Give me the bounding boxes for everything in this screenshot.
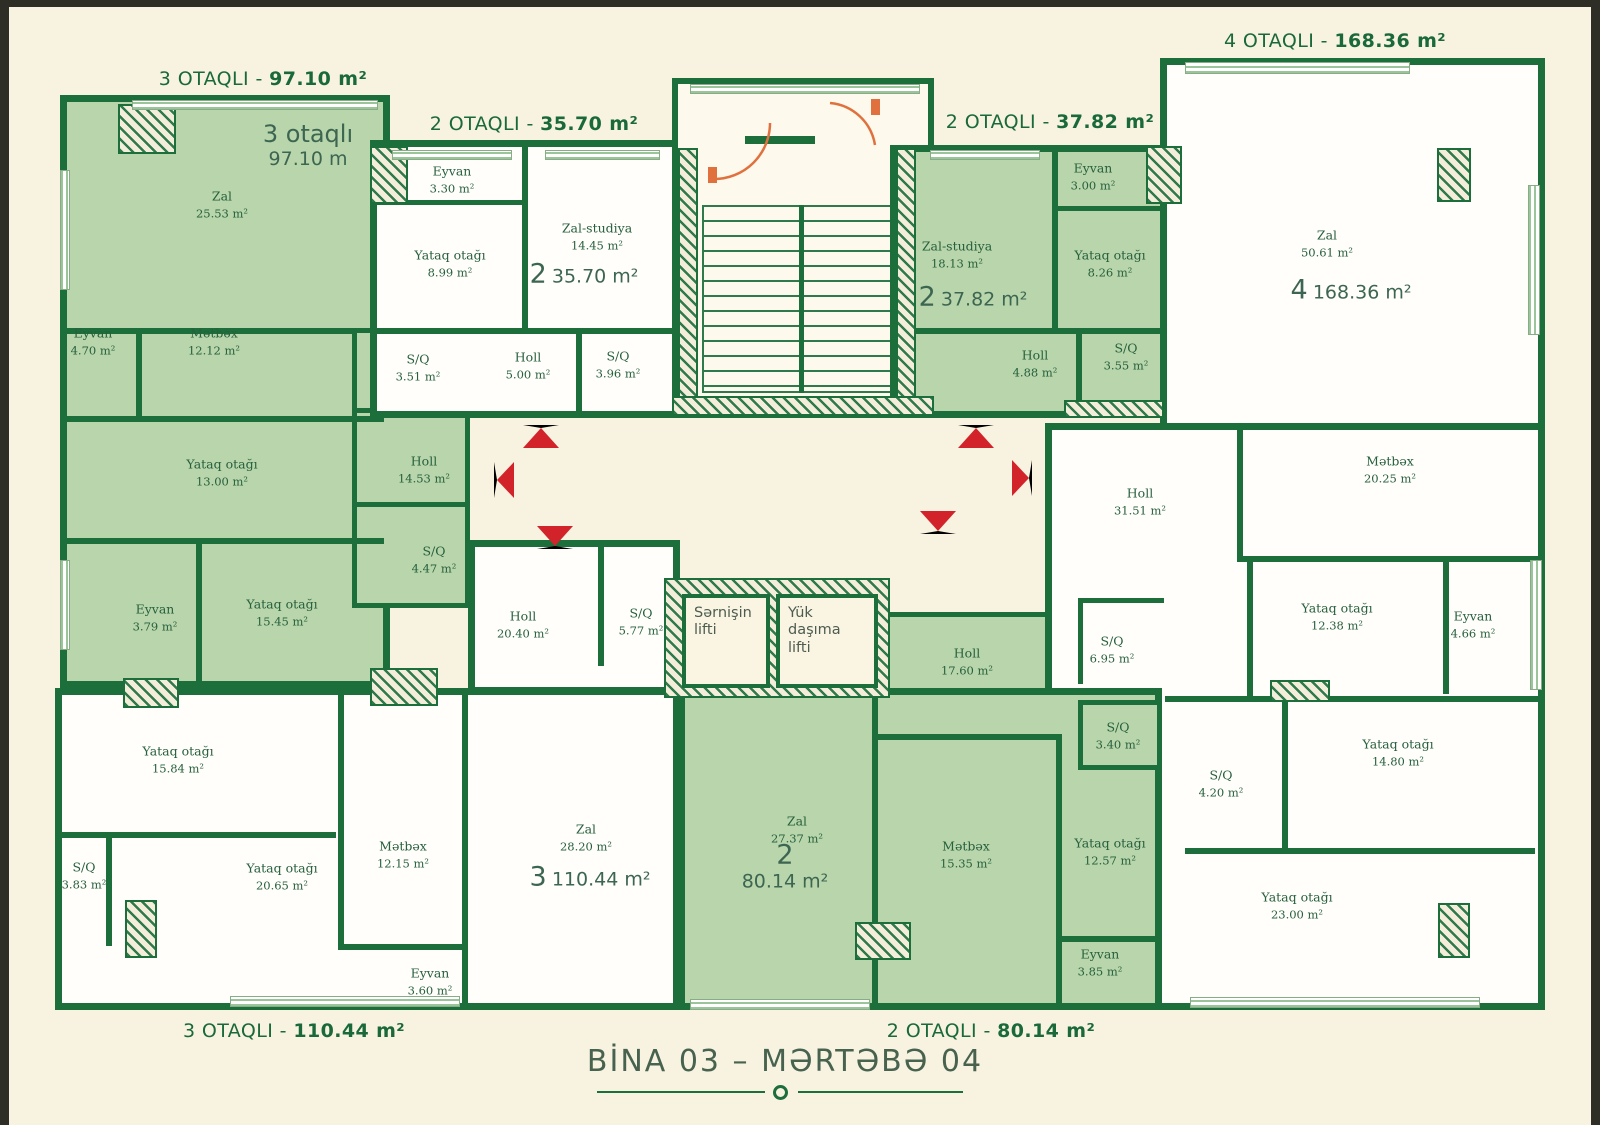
unit-area: 37.82 m² [941, 289, 1028, 311]
wall [1056, 740, 1062, 1004]
window [132, 100, 378, 110]
header-area: 97.10 m² [269, 68, 367, 90]
column-hatch [1437, 148, 1471, 202]
column-hatch [123, 678, 179, 708]
room-label: S/Q3.96 m² [596, 348, 641, 383]
column-hatch [118, 104, 176, 154]
apartment-97-inner-label: 3 otaqlı 97.10 m [263, 120, 353, 170]
window [60, 560, 70, 650]
header-area: 110.44 m² [293, 1020, 405, 1042]
header-label: 4 OTAQLI - [1224, 30, 1328, 52]
room-label: S/Q5.77 m² [619, 605, 664, 640]
wall [66, 416, 384, 422]
room-label: Eyvan3.79 m² [133, 601, 178, 636]
window [545, 150, 660, 160]
header-label: 2 OTAQLI - [887, 1020, 991, 1042]
room-label: Holl31.51 m² [1114, 485, 1166, 520]
column-hatch [370, 668, 438, 706]
room-label: Eyvan4.66 m² [1451, 608, 1496, 643]
window [1185, 62, 1410, 74]
stair-stringer [799, 205, 804, 393]
wall [1052, 151, 1058, 333]
room-label: Zal25.53 m² [196, 188, 248, 223]
entrance-arrow-right [1012, 460, 1032, 496]
wall [1185, 848, 1535, 854]
room-label: Zal28.20 m² [560, 821, 612, 856]
apartment-37-header: 2 OTAQLI - 37.82 m² [946, 111, 1154, 133]
room-label: Mətbəx15.35 m² [940, 838, 992, 873]
photo-edge [0, 0, 1600, 7]
room-label: Zal-studiya14.45 m² [562, 220, 632, 255]
wall [340, 944, 468, 950]
title-rule [597, 1091, 765, 1093]
entrance-arrow-up [958, 425, 994, 448]
apartment-35-header: 2 OTAQLI - 35.70 m² [430, 113, 638, 135]
wall [896, 328, 1174, 334]
unit-count: 2 [530, 259, 547, 290]
wall [1237, 430, 1243, 560]
apartment-110-header: 3 OTAQLI - 110.44 m² [183, 1020, 405, 1042]
header-label: 3 OTAQLI - [183, 1020, 287, 1042]
apartment-80-header: 2 OTAQLI - 80.14 m² [887, 1020, 1095, 1042]
wall [1237, 556, 1539, 562]
room-label: Yataq otağı8.26 m² [1074, 247, 1145, 282]
wall [576, 334, 582, 412]
window [1528, 185, 1540, 335]
unit-area: 35.70 m² [552, 266, 639, 288]
wall [1282, 702, 1288, 850]
column-hatch [678, 148, 698, 406]
column-hatch [1270, 680, 1330, 702]
room-label: Zal27.37 m² [771, 813, 823, 848]
room-label: Yataq otağı12.38 m² [1301, 600, 1372, 635]
room-label: Yataq otağı20.65 m² [246, 860, 317, 895]
room-label: Yataq otağı23.00 m² [1261, 889, 1332, 924]
room-label: Mətbəx12.12 m² [188, 325, 240, 360]
room-label: S/Q3.51 m² [396, 351, 441, 386]
apartment-168-inner-label: 4 168.36 m² [1291, 275, 1412, 306]
wall [376, 328, 674, 334]
room-label: Eyvan3.60 m² [408, 965, 453, 1000]
entrance-arrow-up [523, 425, 559, 448]
wall [1247, 562, 1253, 700]
header-area: 37.82 m² [1056, 111, 1154, 133]
window [1190, 997, 1480, 1008]
column-hatch [1064, 400, 1164, 418]
wall [1078, 598, 1164, 603]
wall [878, 734, 1062, 740]
room-label: Eyvan3.85 m² [1078, 946, 1123, 981]
apartment-168-header: 4 OTAQLI - 168.36 m² [1224, 30, 1446, 52]
title-ring [773, 1085, 788, 1100]
room-label: S/Q3.40 m² [1096, 719, 1141, 754]
header-area: 168.36 m² [1334, 30, 1446, 52]
room-label: S/Q4.47 m² [412, 543, 457, 578]
room-label: Eyvan4.70 m² [71, 325, 116, 360]
unit-area: 97.10 m [263, 148, 353, 170]
wall [522, 146, 528, 332]
title-rule [798, 1091, 963, 1093]
window [392, 150, 512, 160]
column-hatch [896, 148, 916, 406]
apartment-80-inner-label: 2 80.14 m² [742, 840, 829, 893]
wall [357, 502, 465, 507]
unit-area: 80.14 m² [742, 871, 829, 893]
window [60, 170, 70, 290]
room-label: Eyvan3.00 m² [1071, 160, 1116, 195]
apartment-97 [60, 95, 390, 688]
entrance-arrow-left [494, 462, 514, 498]
wall [338, 694, 344, 950]
header-area: 80.14 m² [997, 1020, 1095, 1042]
column-hatch [1146, 146, 1182, 204]
window [1530, 560, 1542, 690]
column-hatch [672, 396, 934, 416]
room-label: Yataq otağı15.84 m² [142, 743, 213, 778]
apartment-35-inner-label: 2 35.70 m² [530, 259, 639, 290]
page-title: BİNA 03 – MƏRTƏBƏ 04 [587, 1044, 983, 1079]
room-label: Zal-studiya18.13 m² [922, 238, 992, 273]
room-label: Yataq otağı12.57 m² [1074, 835, 1145, 870]
wall [1078, 598, 1083, 684]
passenger-elevator: Sərnişin lifti [682, 594, 770, 688]
wall [1165, 696, 1539, 702]
unit-count: 2 [919, 282, 936, 313]
unit-type: 3 otaqlı [263, 120, 353, 148]
entrance-arrow-down [920, 511, 956, 534]
window [690, 999, 870, 1010]
entrance-arrow-down [537, 526, 573, 549]
room-label: Zal50.61 m² [1301, 227, 1353, 262]
unit-count: 3 [530, 862, 547, 893]
header-area: 35.70 m² [540, 113, 638, 135]
window [690, 84, 920, 94]
room-label: S/Q6.95 m² [1090, 633, 1135, 668]
header-label: 3 OTAQLI - [159, 68, 263, 90]
unit-area: 110.44 m² [552, 869, 651, 891]
room-label: Mətbəx12.15 m² [377, 838, 429, 873]
room-label: S/Q3.55 m² [1104, 340, 1149, 375]
unit-area: 168.36 m² [1313, 282, 1412, 304]
column-hatch [1438, 903, 1470, 958]
header-label: 2 OTAQLI - [430, 113, 534, 135]
column-hatch [855, 922, 911, 960]
apartment-110-inner-label: 3 110.44 m² [530, 862, 651, 893]
floor-plan: Sərnişin lifti Yük daşıma lifti 3 OTAQLI… [0, 0, 1600, 1125]
wall [66, 538, 384, 544]
room-label: Yataq otağı8.99 m² [414, 247, 485, 282]
unit-count: 4 [1291, 275, 1308, 306]
room-label: Holl4.88 m² [1013, 347, 1058, 382]
photo-edge [0, 0, 9, 1125]
room-label: Yataq otağı14.80 m² [1362, 736, 1433, 771]
room-label: Eyvan3.30 m² [430, 163, 475, 198]
passenger-elevator-label: Sərnişin lifti [694, 605, 752, 638]
room-label: S/Q4.20 m² [1199, 767, 1244, 802]
apartment-97-header: 3 OTAQLI - 97.10 m² [159, 68, 367, 90]
wall [1056, 936, 1162, 942]
wall [462, 694, 468, 1004]
wall [598, 546, 604, 666]
room-label: Holl5.00 m² [506, 349, 551, 384]
freight-elevator: Yük daşıma lifti [776, 594, 878, 688]
room-label: Yataq otağı13.00 m² [186, 456, 257, 491]
wall [1056, 206, 1174, 211]
room-label: Yataq otağı15.45 m² [246, 596, 317, 631]
room-label: S/Q3.83 m² [62, 859, 107, 894]
room-label: Mətbəx20.25 m² [1364, 453, 1416, 488]
room-label: Holl14.53 m² [398, 453, 450, 488]
wall [136, 330, 142, 418]
wall [62, 832, 336, 838]
room-label: Holl17.60 m² [941, 645, 993, 680]
wall [106, 838, 112, 946]
wall [196, 542, 202, 684]
apartment-37-inner-label: 2 37.82 m² [919, 282, 1028, 313]
column-hatch [125, 900, 157, 958]
wall [1443, 562, 1449, 694]
freight-elevator-label: Yük daşıma lifti [788, 605, 841, 656]
photo-edge [1591, 0, 1600, 1125]
room-label: Holl20.40 m² [497, 608, 549, 643]
header-label: 2 OTAQLI - [946, 111, 1050, 133]
window [930, 150, 1040, 160]
